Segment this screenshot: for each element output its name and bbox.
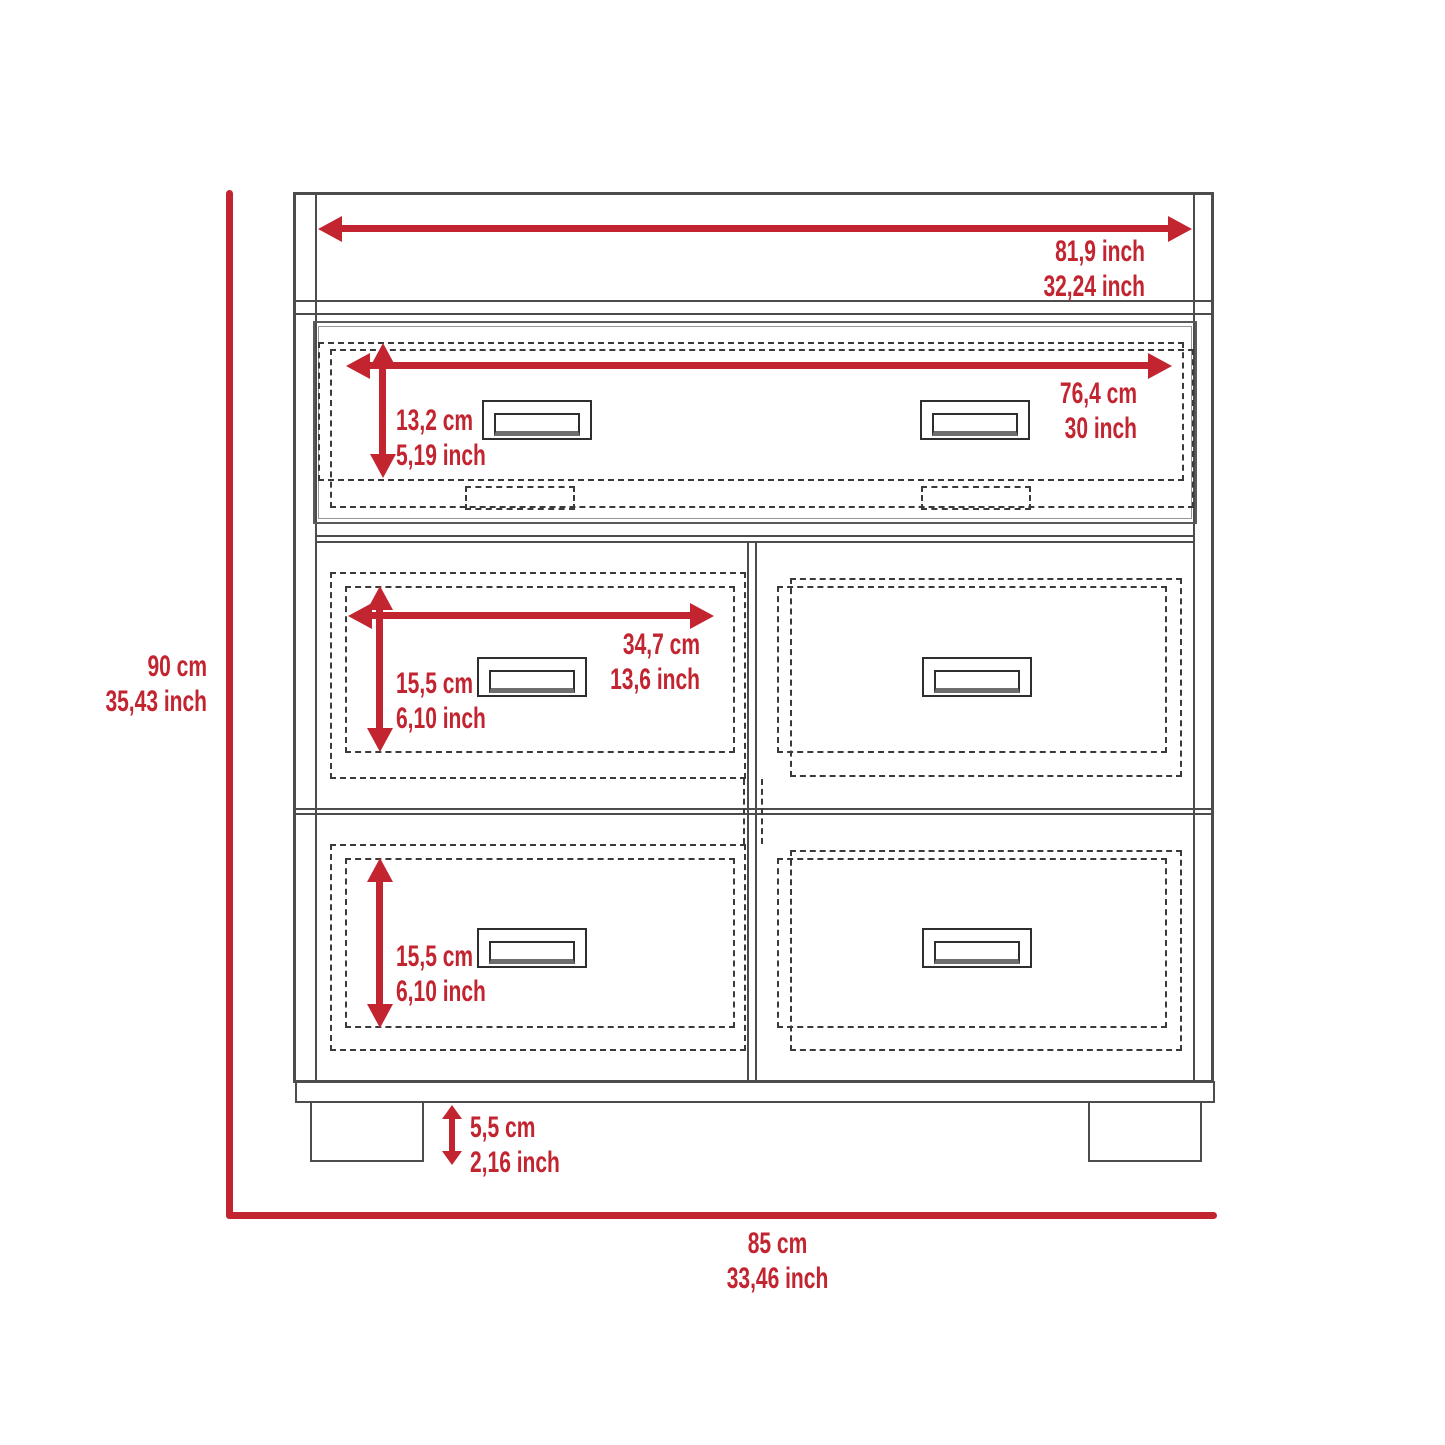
dimension-value: 6,10 inch [396, 974, 550, 1009]
middle-right-drawer-handle [922, 657, 1032, 697]
dimension-label-leg-height: 5,5 cm 2,16 inch [470, 1110, 610, 1180]
dimension-value: 81,9 inch [946, 234, 1146, 269]
dimension-value: 33,46 inch [688, 1261, 867, 1296]
top-width-arrow [342, 225, 1168, 232]
top-panel-line-2 [296, 313, 1211, 315]
dimension-value: 32,24 inch [946, 269, 1146, 304]
dimension-value: 2,16 inch [470, 1145, 610, 1180]
dimension-value: 15,5 cm [396, 666, 550, 701]
dimension-label-top-width: 81,9 inch 32,24 inch [946, 234, 1146, 304]
dimension-value: 5,5 cm [470, 1110, 610, 1145]
row-separator-line-1 [296, 808, 1211, 810]
dimension-value: 13,2 cm [396, 403, 550, 438]
dimension-value: 35,43 inch [90, 684, 207, 719]
dimension-value: 76,4 cm [943, 376, 1137, 411]
top-drawer-slide-right [921, 486, 1031, 510]
overall-width-dimension-line [226, 1212, 1217, 1219]
row-separator-line-2 [296, 813, 1211, 815]
base-bar [295, 1081, 1215, 1103]
dimension-label-overall-height: 90 cm 35,43 inch [90, 649, 207, 719]
leg-height-arrow [449, 1119, 455, 1151]
overall-height-dimension-line [226, 190, 233, 1219]
dimension-value: 15,5 cm [396, 939, 550, 974]
dimension-label-top-drawer-width: 76,4 cm 30 inch [943, 376, 1137, 446]
top-drawer-height-arrow [379, 367, 386, 454]
middle-drawer-width-arrow [372, 612, 690, 619]
dimension-label-overall-width: 85 cm 33,46 inch [688, 1226, 867, 1296]
top-drawer-width-arrow [370, 362, 1148, 369]
bottom-drawer-height-arrow [376, 882, 383, 1004]
dimension-value: 5,19 inch [396, 438, 550, 473]
bottom-right-drawer-handle [922, 928, 1032, 968]
dimension-label-bottom-drawer-height: 15,5 cm 6,10 inch [396, 939, 550, 1009]
shelf-line-1 [317, 535, 1195, 537]
center-divider-line-2 [755, 543, 757, 1083]
dimension-label-middle-drawer-height: 15,5 cm 6,10 inch [396, 666, 550, 736]
dimension-value: 13,6 inch [539, 662, 700, 697]
handle-recess [934, 670, 1020, 693]
left-leg [310, 1101, 424, 1162]
dimension-value: 34,7 cm [539, 627, 700, 662]
dimension-value: 90 cm [90, 649, 207, 684]
dimension-value: 30 inch [943, 411, 1137, 446]
divider-dashed-right [761, 779, 763, 844]
dimension-value: 85 cm [688, 1226, 867, 1261]
right-leg [1088, 1101, 1202, 1162]
top-drawer-slide-left [465, 486, 575, 510]
divider-dashed-left [743, 779, 745, 844]
handle-recess [934, 941, 1020, 964]
dimension-value: 6,10 inch [396, 701, 550, 736]
dimension-label-top-drawer-height: 13,2 cm 5,19 inch [396, 403, 550, 473]
center-divider-line-1 [747, 543, 749, 1083]
middle-drawer-height-arrow [376, 610, 383, 728]
dimension-label-middle-drawer-width: 34,7 cm 13,6 inch [539, 627, 700, 697]
dimension-diagram: 81,9 inch 32,24 inch 76,4 cm 30 inch 13,… [0, 0, 1445, 1445]
